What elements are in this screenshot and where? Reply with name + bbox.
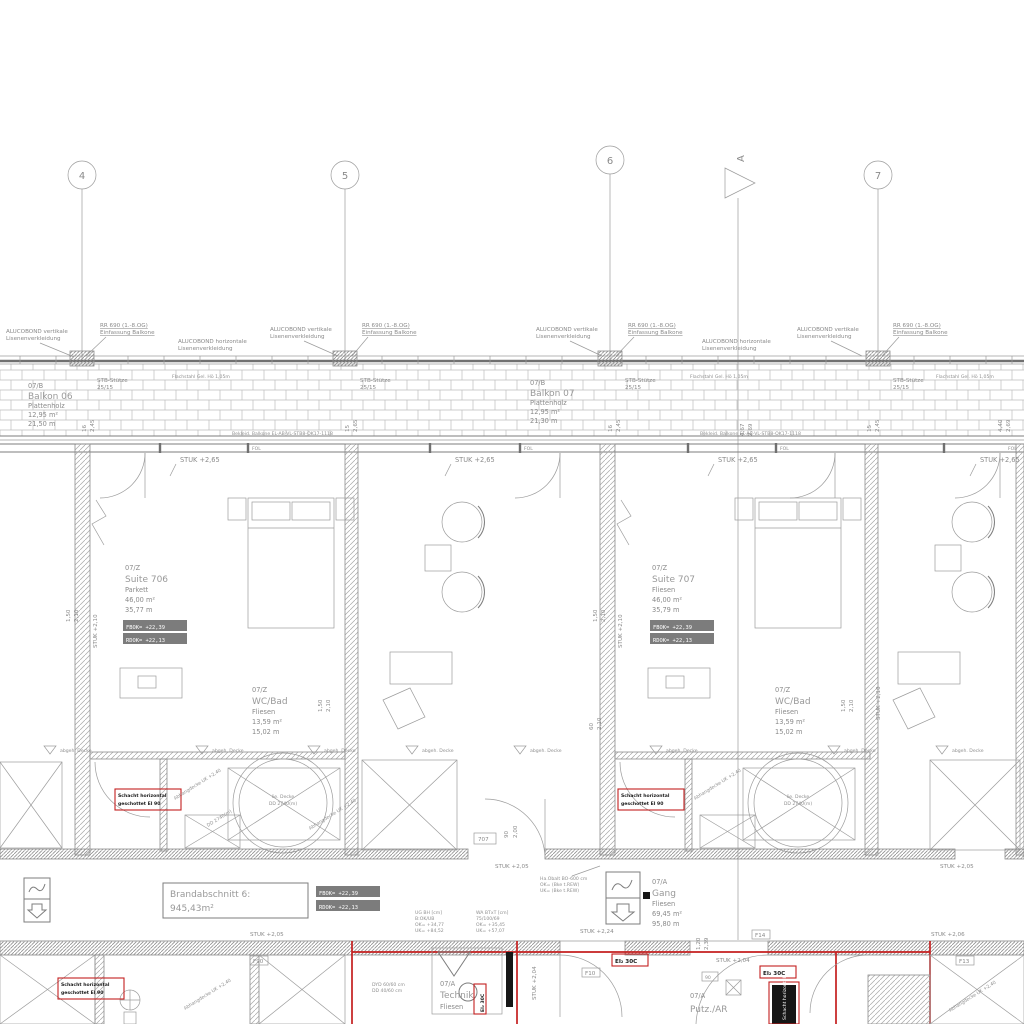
dim-a-axis-a: 4,67 — [740, 423, 746, 436]
svg-text:ALUCOBOND horizontale: ALUCOBOND horizontale — [178, 339, 247, 345]
pillow-707-b — [799, 502, 837, 520]
svg-text:1,50: 1,50 — [318, 699, 324, 712]
svg-text:UK= +84,52: UK= +84,52 — [415, 928, 444, 934]
svg-text:07/B: 07/B — [28, 382, 44, 390]
party-wall-4 — [865, 444, 878, 855]
schedule-tag-1: UG BH [cm] B:OK/UB OK= +34,77 UK= +84,52 — [415, 910, 444, 934]
bottom-door-arc-3 — [810, 955, 868, 1013]
svg-text:07/A: 07/A — [440, 980, 456, 988]
svg-text:21,50 m: 21,50 m — [28, 420, 55, 428]
svg-text:Technik: Technik — [439, 991, 474, 1001]
ceiling-note-bottom-left: Abhangdecke UK +2,40 — [183, 978, 233, 1012]
dim-right-a: 4,40 — [998, 419, 1004, 432]
svg-text:Lisenenverkleidung: Lisenenverkleidung — [797, 334, 852, 340]
section-marker-label: A — [736, 155, 747, 162]
svg-text:UG BH [cm]: UG BH [cm] — [415, 910, 442, 916]
f-tag-4: F13 — [959, 959, 970, 965]
annotation-alucobond-vertical-1: ALUCOBOND vertikale Lisenenverkleidung — [6, 329, 74, 357]
column-label-1b: 25/15 — [97, 385, 114, 391]
svg-text:Suite 706: Suite 706 — [125, 575, 168, 585]
window-tag-2: FOL — [524, 446, 533, 452]
bottom-door-arc-1 — [560, 955, 622, 1017]
window-tag-3: FOL — [780, 446, 789, 452]
desk-706 — [120, 668, 182, 698]
bed-707 — [755, 498, 841, 628]
svg-text:EI₂ 30C: EI₂ 30C — [480, 993, 486, 1012]
svg-text:90: 90 — [705, 975, 711, 981]
svg-text:Lisenenverkleidung: Lisenenverkleidung — [536, 334, 591, 340]
tub-note-706b: DD 2740(m) — [269, 801, 297, 807]
grid-label-7: 7 — [875, 171, 881, 182]
railing-label-2: Flachstahl Gel. Hö 1,05m — [690, 374, 748, 380]
svg-text:07/A: 07/A — [690, 992, 706, 1000]
armchair-2b — [952, 572, 992, 612]
dim-g5-a: 15 — [345, 424, 351, 432]
section-marker-triangle — [725, 168, 755, 198]
tub-note-707a: lie. Decke — [787, 794, 810, 800]
annotation-alucobond-vertical-4: ALUCOBOND vertikale Lisenenverkleidung — [797, 327, 862, 356]
stuk-204-v: STUK +2,04 — [532, 966, 538, 1000]
svg-text:ALUCOBOND vertikale: ALUCOBOND vertikale — [270, 327, 332, 333]
svg-text:2,10: 2,10 — [597, 717, 603, 730]
column-label-3a: STB-Stütze — [625, 378, 656, 384]
svg-text:15,02 m: 15,02 m — [252, 728, 279, 736]
svg-text:RDOK= +22,13: RDOK= +22,13 — [319, 905, 358, 911]
dim-g5-b: 2,65 — [353, 419, 359, 432]
dim-706-window-a: 1,50 — [66, 609, 72, 622]
railing-label-3: Flachstahl Gel. Hö 1,05m — [936, 374, 994, 380]
svg-text:OK= +34,77: OK= +34,77 — [415, 922, 444, 928]
slab-edge-label-1: Bekleid. Balkone EL-AB-VL-STB8-OK17-1118 — [232, 431, 333, 437]
column-grid7 — [866, 351, 890, 366]
ceiling-note-706: Abhangdecke UK +2,40 — [173, 768, 223, 802]
svg-text:75/100/69: 75/100/69 — [476, 916, 500, 922]
room-technik: DYD 60/60 cm DD 40/60 cm EI₂ 30C 07/A Te… — [372, 948, 513, 1014]
svg-text:RDOK= +22,13: RDOK= +22,13 — [126, 638, 165, 644]
dim-right-b: 2,69 — [1006, 419, 1012, 432]
floor-plan-canvas: 4 5 6 7 A ALUCOBOND vertikale Lisenenver… — [0, 0, 1024, 1024]
floor-plan-drawing: 4 5 6 7 A ALUCOBOND vertikale Lisenenver… — [0, 0, 1024, 1024]
svg-text:07/Z: 07/Z — [125, 564, 141, 572]
column-grid6 — [598, 351, 622, 366]
nightstand-706-a — [228, 498, 246, 520]
annotation-alucobond-vertical-3: ALUCOBOND vertikale Lisenenverkleidung — [536, 327, 602, 356]
schedule-tag-3: Ha.Obalt BO-600 cm OK= (Bke t.REW) UK= (… — [540, 866, 600, 894]
svg-text:ALUCOBOND vertikale: ALUCOBOND vertikale — [797, 327, 859, 333]
grid-label-5: 5 — [342, 171, 348, 182]
annotation-rr690-4: RR 690 (1.-8.OG) Einfassung Balkone — [882, 323, 948, 356]
hydrant-icon — [606, 872, 650, 924]
side-table-2 — [935, 545, 961, 571]
door-dim-w: 90 — [504, 830, 510, 838]
f-tag-3: F14 — [755, 933, 766, 939]
svg-text:35,79 m: 35,79 m — [652, 606, 679, 614]
svg-text:abgeh. Decke: abgeh. Decke — [422, 748, 454, 754]
svg-text:15,02 m: 15,02 m — [775, 728, 802, 736]
stuk-265-1: STUK +2,65 — [180, 456, 220, 464]
table-2 — [898, 652, 960, 684]
svg-text:Schacht horizontal: Schacht horizontal — [782, 977, 788, 1020]
svg-text:Plattenholz: Plattenholz — [530, 399, 567, 407]
party-wall-1 — [75, 444, 90, 855]
svg-text:Brandabschnitt 6:: Brandabschnitt 6: — [170, 890, 250, 900]
svg-text:Plattenholz: Plattenholz — [28, 402, 65, 410]
dim-g7-a: 15 — [867, 424, 873, 432]
door-leaf-black — [506, 952, 513, 1007]
svg-text:B:OK/UB: B:OK/UB — [415, 916, 434, 922]
svg-text:46,00 m²: 46,00 m² — [652, 596, 682, 604]
svg-text:Putz./AR: Putz./AR — [690, 1005, 728, 1015]
grid-label-4: 4 — [79, 171, 85, 182]
svg-text:Schacht horizontal: Schacht horizontal — [118, 793, 167, 799]
column-label-1a: STB-Stütze — [97, 378, 128, 384]
desk-707 — [648, 668, 710, 698]
side-table-1 — [425, 545, 451, 571]
svg-text:2,10: 2,10 — [849, 699, 855, 712]
grid-label-6: 6 — [607, 156, 613, 167]
tilted-ottoman-1 — [383, 688, 425, 729]
svg-text:FBOK= +22,39: FBOK= +22,39 — [319, 891, 358, 897]
svg-text:OK= (Bke t.REW): OK= (Bke t.REW) — [540, 882, 580, 888]
svg-text:2,39: 2,39 — [704, 937, 710, 950]
armchair-2a — [952, 502, 992, 542]
desk-chair-707 — [666, 676, 684, 688]
party-walls — [75, 444, 1024, 855]
svg-text:Fliesen: Fliesen — [440, 1003, 463, 1011]
svg-text:1,50: 1,50 — [841, 699, 847, 712]
dim-g7-b: 2,45 — [875, 419, 881, 432]
door-arc-suite707 — [790, 453, 835, 498]
dim-g4-a: 16 — [82, 424, 88, 432]
svg-text:Einfassung Balkone: Einfassung Balkone — [362, 330, 417, 336]
svg-text:46,00 m²: 46,00 m² — [125, 596, 155, 604]
suite-707: 07/Z Suite 707 Fliesen 46,00 m² 35,79 m … — [593, 456, 861, 698]
dim-706-window-b: 2,10 — [74, 609, 80, 622]
svg-text:13,59 m²: 13,59 m² — [775, 718, 805, 726]
bath-wall-706 — [90, 752, 345, 759]
svg-text:07/Z: 07/Z — [652, 564, 668, 572]
corridor: Brandabschnitt 6: 945,43m² FBOK= +22,39 … — [24, 866, 965, 938]
svg-text:Einfassung Balkone: Einfassung Balkone — [893, 330, 948, 336]
hydrant-icon-left — [24, 878, 50, 922]
svg-text:945,43m²: 945,43m² — [170, 904, 214, 914]
svg-text:Gang: Gang — [652, 889, 676, 899]
column-grid4 — [70, 351, 94, 366]
svg-text:RR 690 (1.-8.OG): RR 690 (1.-8.OG) — [362, 323, 410, 329]
dim-g6-a: 16 — [608, 424, 614, 432]
svg-text:geschottet EI 90: geschottet EI 90 — [118, 801, 160, 807]
svg-text:ALUCOBOND vertikale: ALUCOBOND vertikale — [6, 329, 68, 335]
dim-g6-b: 2,45 — [616, 419, 622, 432]
bath-wall-707 — [615, 752, 870, 759]
svg-text:DYD 60/60 cm: DYD 60/60 cm — [372, 982, 405, 988]
stuk-204-1: STUK +2,04 — [716, 958, 750, 964]
svg-text:geschottet EI 90: geschottet EI 90 — [61, 990, 103, 996]
svg-text:12,95 m²: 12,95 m² — [28, 411, 58, 419]
svg-text:abgeh. Decke: abgeh. Decke — [60, 748, 92, 754]
svg-text:abgeh. Decke: abgeh. Decke — [530, 748, 562, 754]
svg-text:35,77 m: 35,77 m — [125, 606, 152, 614]
door-dim-h: 2,00 — [513, 825, 519, 838]
suite-706: 07/Z Suite 706 Parkett 46,00 m² 35,77 m … — [66, 456, 354, 698]
svg-text:DD 40/60 cm: DD 40/60 cm — [372, 988, 403, 994]
svg-text:Schacht horizontal: Schacht horizontal — [621, 793, 670, 799]
dim-g4-b: 2,45 — [90, 419, 96, 432]
stuk-205-2: STUK +2,05 — [940, 864, 974, 870]
curtain-symbol-1 — [92, 500, 106, 545]
stuk-210-v3: STUK +2,10 — [876, 686, 882, 720]
svg-text:RR 690 (1.-8.OG): RR 690 (1.-8.OG) — [628, 323, 676, 329]
svg-text:FBOK= +22,39: FBOK= +22,39 — [653, 625, 692, 631]
f-tag-1: F90 — [253, 959, 264, 965]
svg-text:Balkon 07: Balkon 07 — [530, 389, 575, 399]
tub-note-707b: DD 2740(m) — [784, 801, 812, 807]
facade-annotations: ALUCOBOND vertikale Lisenenverkleidung R… — [6, 323, 948, 357]
svg-text:Fliesen: Fliesen — [652, 900, 675, 908]
ceiling-note-706b: DD 2740(m) — [206, 809, 233, 829]
tub-note-706a: lie. Decke — [272, 794, 295, 800]
armchair-1a — [442, 502, 482, 542]
stuk-205-1: STUK +2,05 — [495, 864, 529, 870]
dim-707-window-b: 2,10 — [601, 609, 607, 622]
nightstand-707-b — [843, 498, 861, 520]
bed-706 — [248, 498, 334, 628]
svg-text:07/Z: 07/Z — [775, 686, 791, 694]
svg-text:geschottet EI 90: geschottet EI 90 — [621, 801, 663, 807]
svg-text:Fliesen: Fliesen — [652, 586, 675, 594]
stuk-265-4: STUK +2,65 — [980, 456, 1020, 464]
svg-text:RR 690 (1.-8.OG): RR 690 (1.-8.OG) — [893, 323, 941, 329]
column-grid5 — [333, 351, 357, 366]
column-label-4b: 25/15 — [893, 385, 910, 391]
svg-text:Ha.Obalt BO-600 cm: Ha.Obalt BO-600 cm — [540, 876, 588, 882]
svg-text:UK= (Bke t.REW): UK= (Bke t.REW) — [540, 888, 579, 894]
svg-text:07/Z: 07/Z — [252, 686, 268, 694]
svg-text:2,10: 2,10 — [326, 699, 332, 712]
schedule-tag-2: WA BTxT [cm] 75/100/69 OK= +35,45 UK= +5… — [476, 910, 509, 934]
svg-text:WC/Bad: WC/Bad — [775, 697, 811, 707]
stuk-265-2: STUK +2,65 — [455, 456, 495, 464]
f-tag-2: F10 — [585, 971, 596, 977]
pillow-707-a — [759, 502, 797, 520]
ceiling-note-bottom-right: Abhangdecke UK +2,40 — [948, 980, 998, 1014]
column-label-3b: 25/15 — [625, 385, 642, 391]
svg-text:ALUCOBOND horizontale: ALUCOBOND horizontale — [702, 339, 771, 345]
dim-a-axis-b: 2,69 — [748, 423, 754, 436]
svg-text:95,80 m: 95,80 m — [652, 920, 679, 928]
svg-text:RDOK= +22,13: RDOK= +22,13 — [653, 638, 692, 644]
door-arc-suite706 — [100, 453, 145, 498]
svg-text:UK= +57,07: UK= +57,07 — [476, 928, 505, 934]
column-label-2a: STB-Stütze — [360, 378, 391, 384]
svg-text:Suite 707: Suite 707 — [652, 575, 695, 585]
svg-text:Einfassung Balkone: Einfassung Balkone — [100, 330, 155, 336]
svg-text:Schacht horizontal: Schacht horizontal — [61, 982, 110, 988]
column-label-2b: 25/15 — [360, 385, 377, 391]
room-label-suite706: 07/Z Suite 706 Parkett 46,00 m² 35,77 m — [125, 564, 168, 614]
annotation-alucobond-horizontal-1: ALUCOBOND horizontale Lisenenverkleidung — [178, 339, 247, 352]
curtain-symbol-2 — [617, 500, 631, 545]
svg-text:abgeh. Decke: abgeh. Decke — [952, 748, 984, 754]
door-tag-707: 707 — [478, 837, 489, 843]
svg-text:Lisenenverkleidung: Lisenenverkleidung — [270, 334, 325, 340]
living-area-1: STUK +2,65 — [383, 456, 495, 729]
svg-text:13,59 m²: 13,59 m² — [252, 718, 282, 726]
svg-text:OK= +35,45: OK= +35,45 — [476, 922, 505, 928]
svg-text:1,20: 1,20 — [696, 937, 702, 950]
window-tag-1: FOL — [252, 446, 261, 452]
annotation-alucobond-vertical-2: ALUCOBOND vertikale Lisenenverkleidung — [270, 327, 338, 356]
stuk-265-3: STUK +2,65 — [718, 456, 758, 464]
svg-text:WC/Bad: WC/Bad — [252, 697, 288, 707]
room-putz: 07/A Putz./AR Schacht horizontal — [690, 977, 799, 1024]
room-label-wcbad-706: 07/Z WC/Bad Fliesen 13,59 m² 15,02 m 1,5… — [252, 686, 332, 736]
svg-text:69,45 m²: 69,45 m² — [652, 910, 682, 918]
dim-707-window-a: 1,50 — [593, 609, 599, 622]
room-label-gang: 07/A Gang Fliesen 69,45 m² 95,80 m — [652, 878, 682, 928]
ceiling-note-707: Abhangdecke UK +2,40 — [693, 768, 743, 802]
tilted-ottoman-2 — [893, 688, 935, 729]
stuk-210-v2: STUK +2,10 — [618, 614, 624, 648]
svg-text:EI₂ 30C: EI₂ 30C — [763, 971, 785, 977]
svg-text:WA BTxT [cm]: WA BTxT [cm] — [476, 910, 509, 916]
armchair-1b — [442, 572, 482, 612]
svg-text:RR 690 (1.-8.OG): RR 690 (1.-8.OG) — [100, 323, 148, 329]
grid-axes: 4 5 6 7 A — [68, 146, 892, 940]
svg-text:ALUCOBOND vertikale: ALUCOBOND vertikale — [536, 327, 598, 333]
stuk-205-3: STUK +2,05 — [250, 932, 284, 938]
door-arc-living1 — [515, 453, 560, 498]
annotation-alucobond-horizontal-2: ALUCOBOND horizontale Lisenenverkleidung — [702, 339, 771, 352]
svg-text:FBOK= +22,39: FBOK= +22,39 — [126, 625, 165, 631]
stuk-224: STUK +2,24 — [580, 929, 614, 935]
svg-text:Fliesen: Fliesen — [252, 708, 275, 716]
svg-text:12,95 m²: 12,95 m² — [530, 408, 560, 416]
svg-text:Balkon 06: Balkon 06 — [28, 392, 73, 402]
railing-label-1: Flachstahl Gel. Hö 1,05m — [172, 374, 230, 380]
stuk-206: STUK +2,06 — [931, 932, 965, 938]
room-label-wcbad-707: 07/Z WC/Bad Fliesen 13,59 m² 15,02 m 1,5… — [775, 686, 855, 736]
pillow-706-a — [252, 502, 290, 520]
svg-text:Lisenenverkleidung: Lisenenverkleidung — [6, 336, 61, 342]
annotation-rr690-3: RR 690 (1.-8.OG) Einfassung Balkone — [616, 323, 683, 356]
svg-text:Lisenenverkleidung: Lisenenverkleidung — [178, 346, 233, 352]
dim-60: 60 — [589, 722, 595, 730]
pillow-706-b — [292, 502, 330, 520]
svg-text:Einfassung Balkone: Einfassung Balkone — [628, 330, 683, 336]
column-label-4a: STB-Stütze — [893, 378, 924, 384]
svg-text:Fliesen: Fliesen — [775, 708, 798, 716]
stuk-210-v1: STUK +2,10 — [93, 614, 99, 648]
svg-text:EI₂ 30C: EI₂ 30C — [615, 959, 637, 965]
annotation-rr690-2: RR 690 (1.-8.OG) Einfassung Balkone — [352, 323, 417, 356]
svg-text:07/B: 07/B — [530, 379, 546, 387]
svg-text:Parkett: Parkett — [125, 586, 149, 594]
svg-text:Lisenenverkleidung: Lisenenverkleidung — [702, 346, 757, 352]
party-wall-2 — [345, 444, 358, 855]
svg-text:07/A: 07/A — [652, 878, 668, 886]
table-1 — [390, 652, 452, 684]
desk-chair-706 — [138, 676, 156, 688]
living-area-2: STUK +2,65 STUK +2,10 — [876, 456, 1020, 729]
annotation-rr690-1: RR 690 (1.-8.OG) Einfassung Balkone — [86, 323, 155, 356]
room-label-suite707: 07/Z Suite 707 Fliesen 46,00 m² 35,79 m — [652, 564, 695, 614]
svg-text:21,30 m: 21,30 m — [530, 417, 557, 425]
party-wall-3 — [600, 444, 615, 855]
balcony-slab: STB-Stütze 25/15 STB-Stütze 25/15 STB-St… — [0, 351, 1024, 440]
